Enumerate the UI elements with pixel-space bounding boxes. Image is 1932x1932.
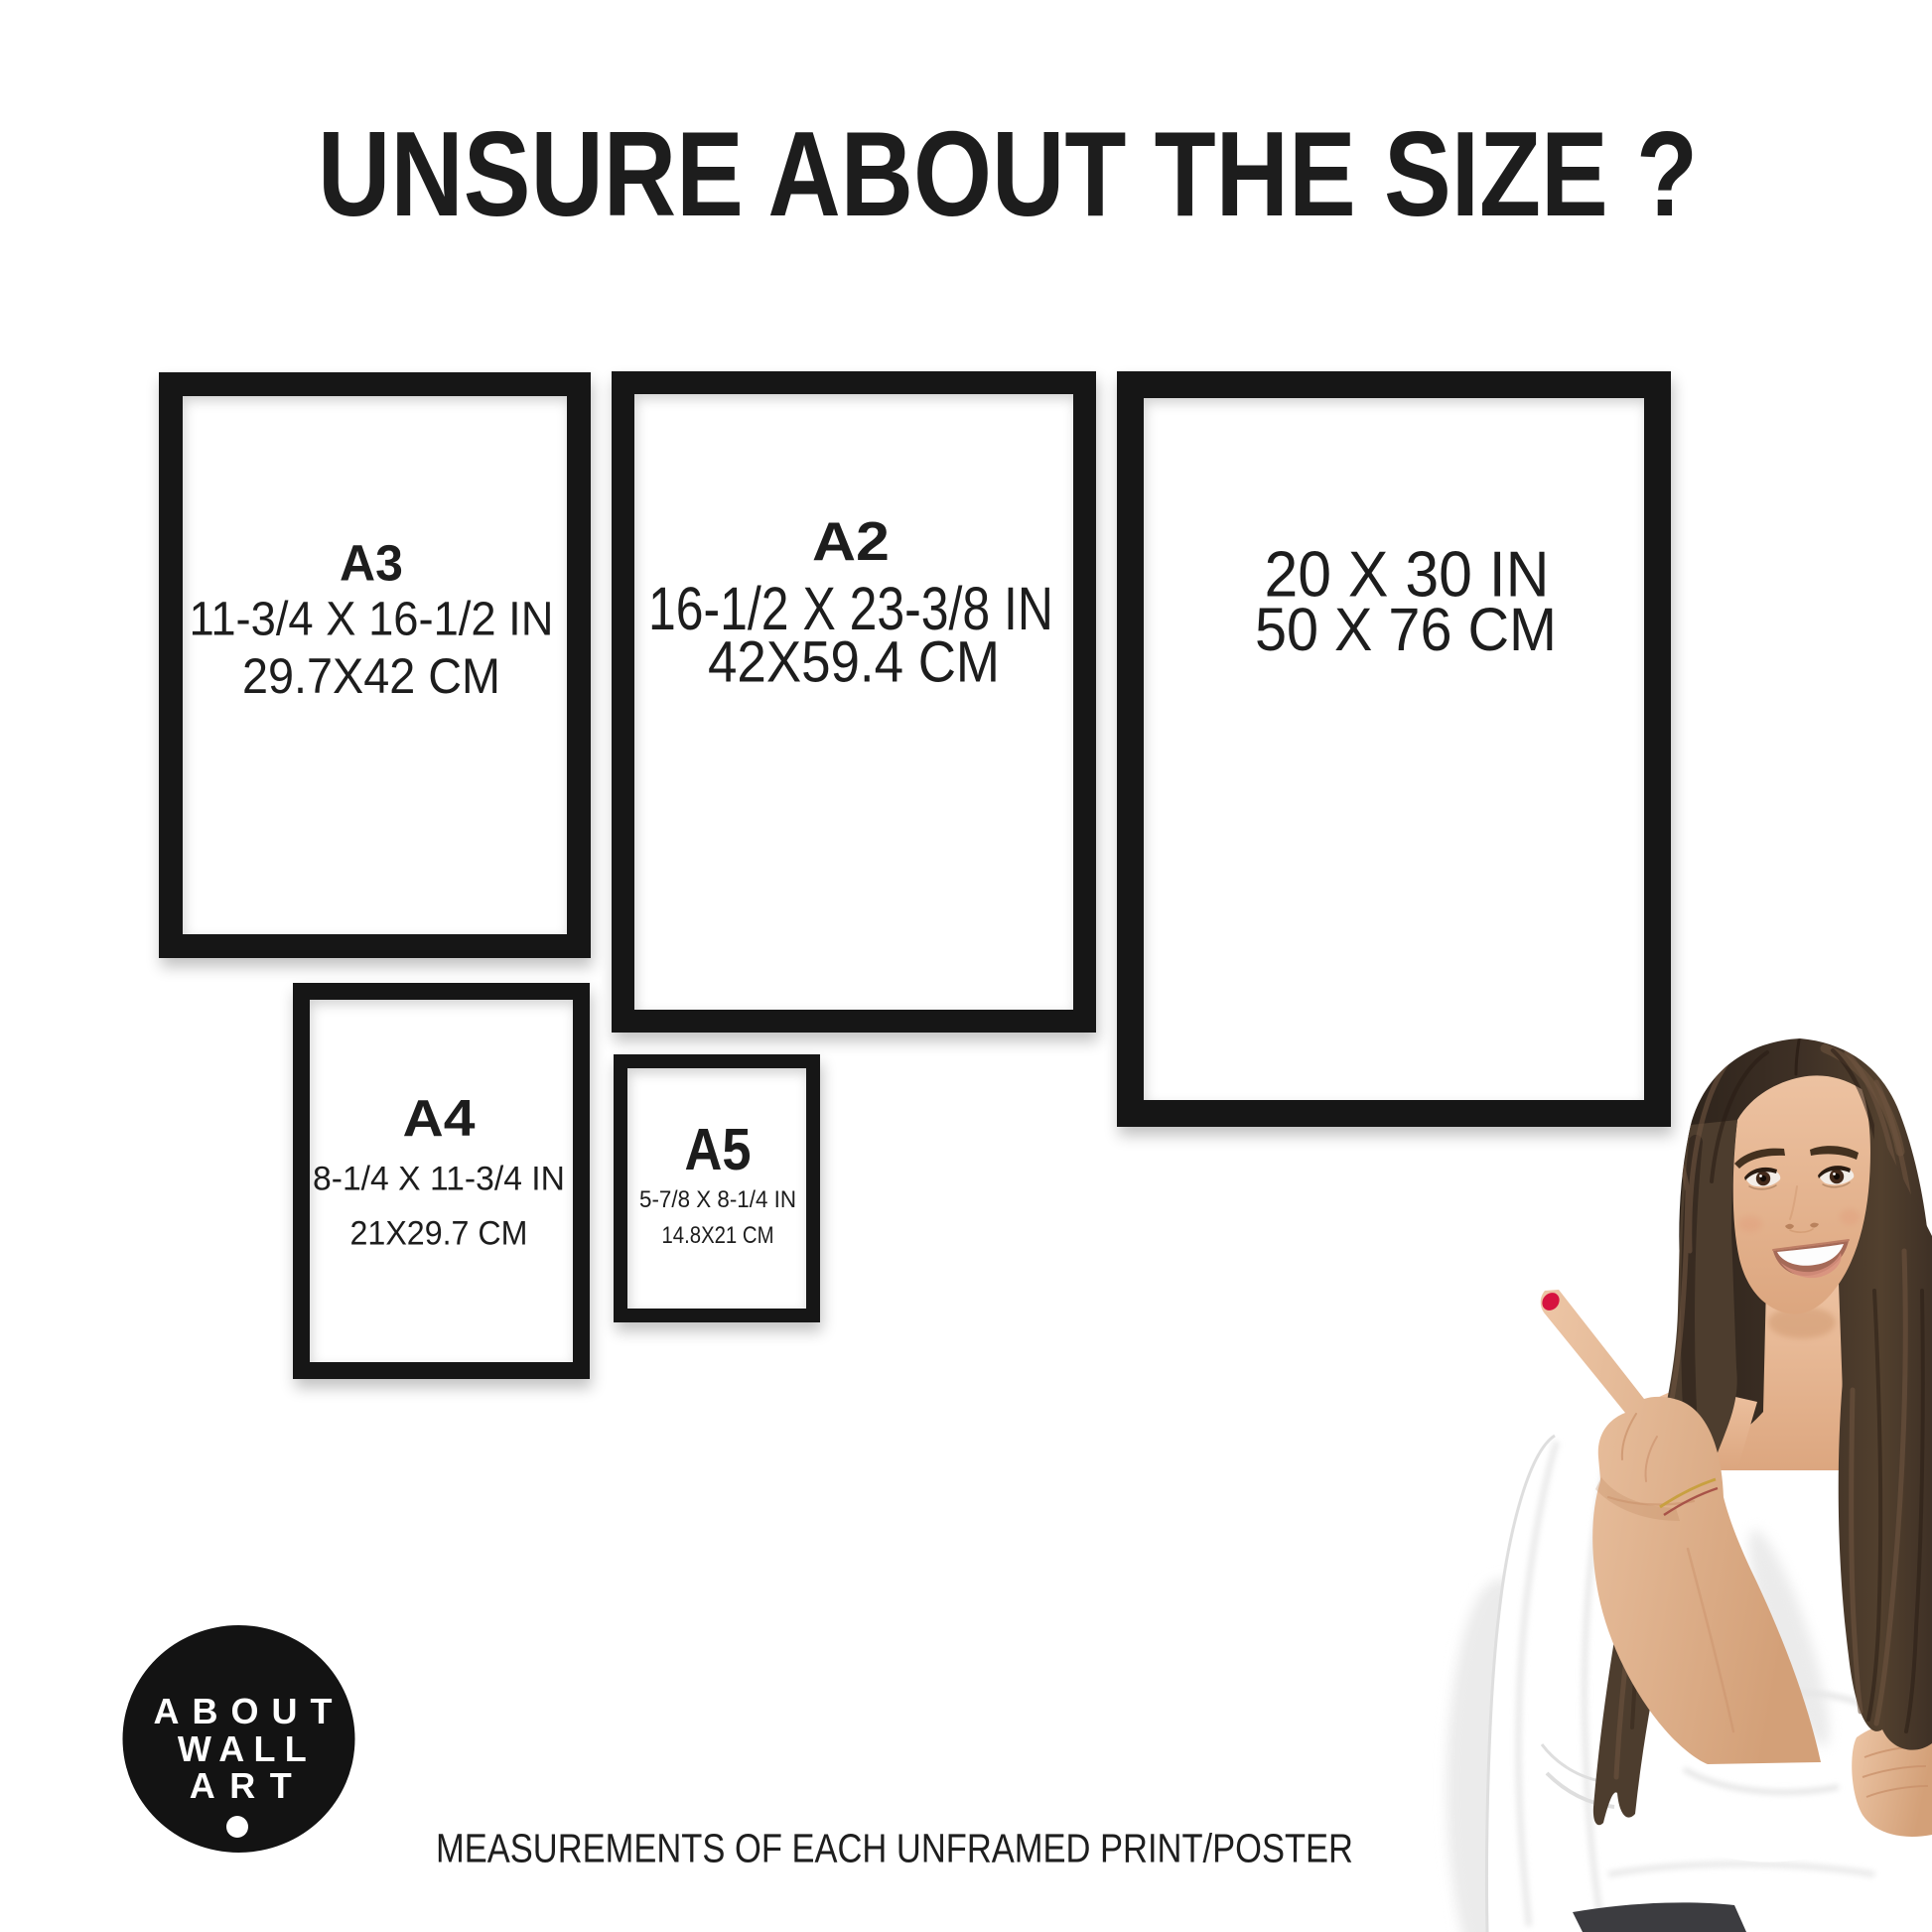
svg-text:ABOUT: ABOUT (154, 1691, 345, 1731)
svg-text:WALL: WALL (178, 1728, 316, 1769)
svg-text:ART: ART (190, 1765, 307, 1806)
